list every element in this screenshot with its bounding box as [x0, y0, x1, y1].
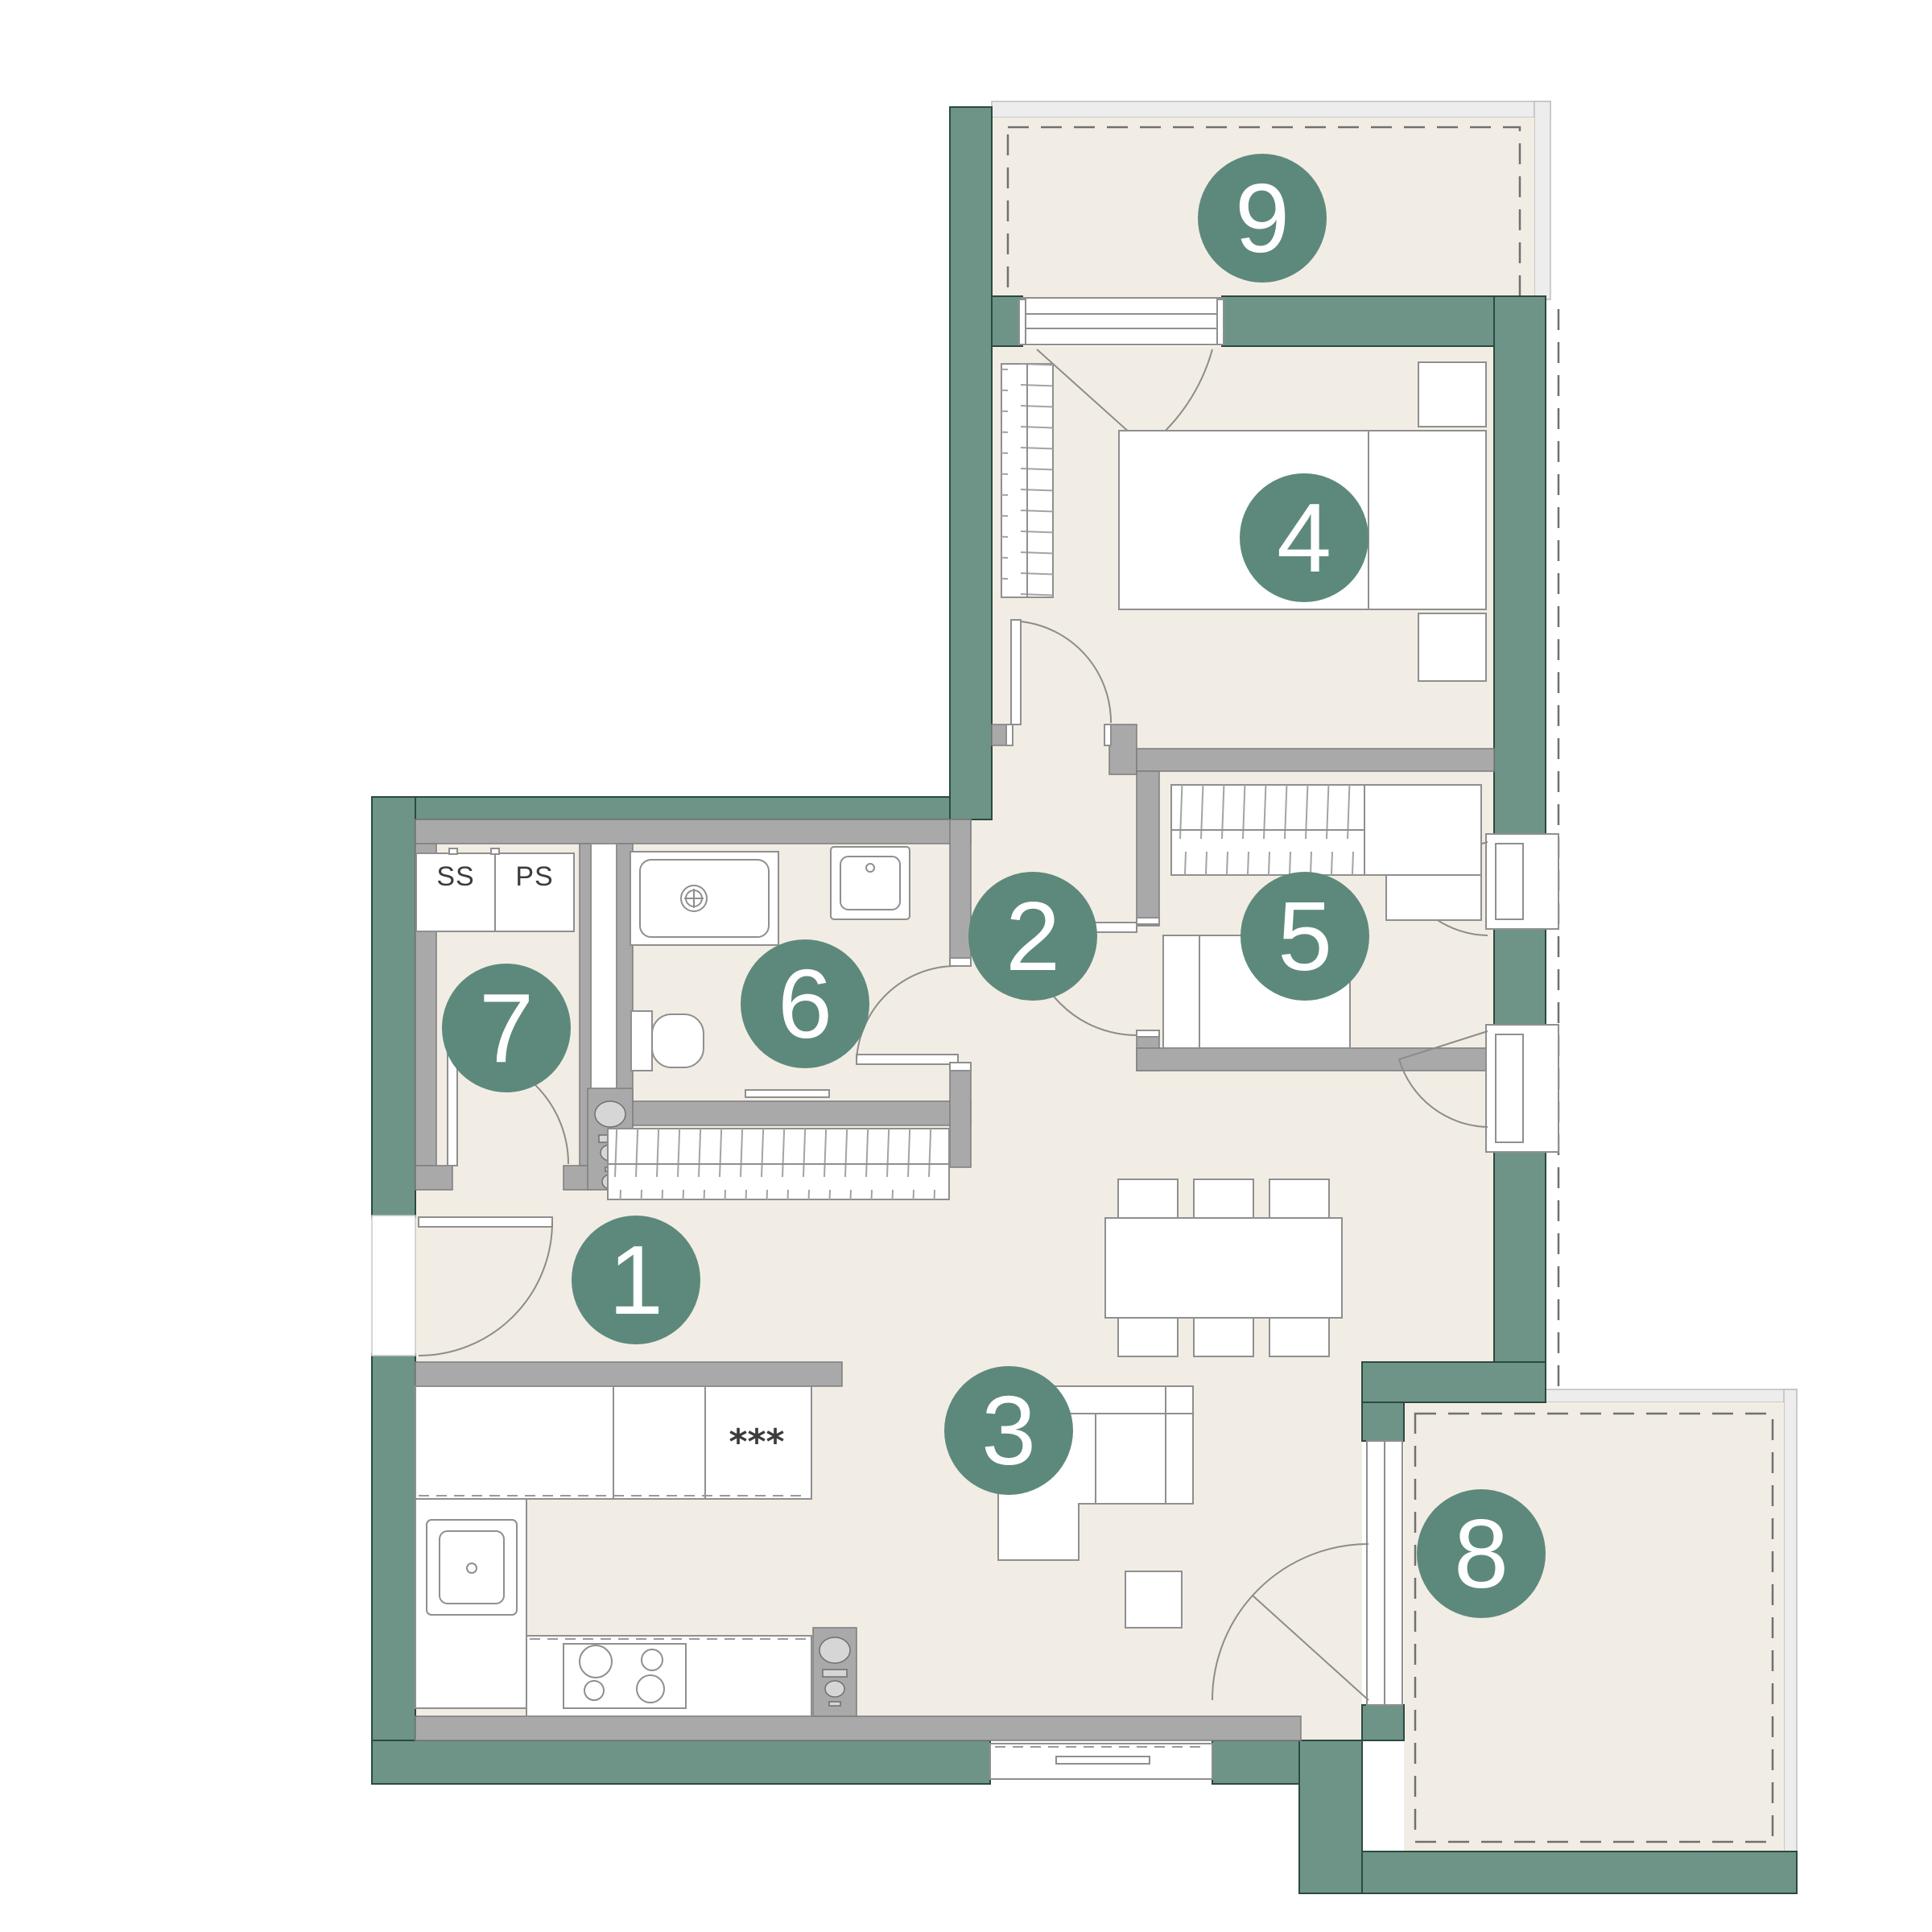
chair	[1118, 1318, 1178, 1356]
svg-text:2: 2	[1005, 881, 1060, 991]
partition-room5-bottom	[1137, 1048, 1494, 1071]
chair	[1194, 1318, 1253, 1356]
nightstand-room4-top	[1418, 362, 1486, 427]
room-marker-5[interactable]: 5	[1241, 872, 1369, 1001]
room-marker-1[interactable]: 1	[572, 1216, 700, 1344]
room-marker-7[interactable]: 7	[442, 964, 571, 1092]
partition-room5-left-upper	[1137, 771, 1159, 926]
wall-left-lower	[372, 1354, 415, 1740]
wall-balcony8-bottom	[1362, 1851, 1797, 1893]
svg-text:9: 9	[1235, 163, 1290, 273]
balcony-bottom-floor	[1404, 1402, 1784, 1853]
partition-room7-bottom-right	[563, 1166, 591, 1190]
room-marker-3[interactable]: 3	[944, 1366, 1073, 1495]
partition-corridor-lower	[950, 1067, 971, 1167]
balcony8-glass-door	[1367, 1441, 1402, 1705]
shaft-column	[591, 844, 617, 1088]
room-marker-8[interactable]: 8	[1417, 1489, 1546, 1618]
wall-upper-left	[950, 107, 992, 819]
svg-text:4: 4	[1277, 483, 1331, 592]
bathtub	[630, 852, 778, 945]
partition-top-lining	[415, 819, 971, 844]
washbasin	[831, 847, 910, 919]
hall-furniture	[608, 1129, 949, 1199]
room-marker-9[interactable]: 9	[1198, 154, 1327, 283]
room-marker-6[interactable]: 6	[741, 939, 869, 1068]
svg-text:5: 5	[1278, 881, 1332, 991]
balcony-bottom-railing-right	[1784, 1389, 1797, 1864]
partition-room5-top	[1137, 749, 1494, 771]
wall-balcony9-left-stub	[992, 296, 1022, 346]
dining-table	[1105, 1218, 1342, 1318]
floor-plan-page: *** SS PS	[0, 0, 1932, 1932]
floor-plan: *** SS PS	[0, 0, 1932, 1932]
kitchen-sink	[427, 1520, 517, 1615]
window-living	[1486, 1025, 1558, 1152]
wall-right-2	[1494, 926, 1546, 1028]
window-bottom	[990, 1744, 1212, 1779]
partition-room7-bottom-left	[415, 1166, 452, 1190]
cabinet-ps-label: PS	[515, 861, 553, 892]
fridge-stars-label: ***	[729, 1422, 784, 1463]
partition-kitchen-top	[415, 1362, 842, 1386]
wall-right-1	[1494, 296, 1546, 837]
wall-balcony8-door-stub-bottom	[1362, 1705, 1404, 1740]
side-table	[1125, 1571, 1182, 1628]
toilet	[631, 1011, 704, 1071]
desk-room5	[1386, 875, 1481, 920]
chair	[1269, 1318, 1329, 1356]
nightstand-room4-bottom	[1418, 613, 1486, 681]
wall-balcony8-top	[1362, 1362, 1546, 1402]
entrance-sill	[372, 1216, 415, 1356]
kitchen-counter-bottom	[526, 1636, 811, 1716]
balcony-top-railing-right	[1534, 101, 1550, 299]
balcony9-door-window	[1019, 298, 1224, 345]
window-room5	[1486, 834, 1558, 929]
svg-text:7: 7	[479, 973, 534, 1083]
svg-text:1: 1	[609, 1225, 663, 1335]
balcony-bottom-railing-top	[1546, 1389, 1797, 1402]
wall-lower-top	[372, 797, 950, 819]
svg-text:6: 6	[778, 949, 832, 1059]
room-marker-4[interactable]: 4	[1240, 473, 1368, 602]
wall-left-upper	[372, 797, 415, 1217]
wall-bottom-mid	[1212, 1740, 1299, 1784]
svg-text:3: 3	[981, 1376, 1036, 1485]
chair	[1269, 1179, 1329, 1218]
wall-balcony8-door-stub-top	[1362, 1402, 1404, 1441]
room7-furniture: SS PS	[416, 848, 574, 931]
partition-room4-room5-joint	[1109, 724, 1137, 774]
partition-bath-bottom	[633, 1101, 971, 1125]
room-marker-2[interactable]: 2	[968, 872, 1097, 1001]
wall-bottom-left	[372, 1740, 990, 1784]
balcony-top-railing	[992, 101, 1550, 118]
partition-corridor-upper	[950, 819, 971, 966]
cabinet-ss-label: SS	[436, 861, 474, 892]
chair	[1118, 1179, 1178, 1218]
partition-bottom-lining	[415, 1716, 1301, 1740]
wall-bottom-step	[1299, 1740, 1362, 1893]
balcony-bottom	[1404, 1389, 1797, 1864]
towel-rail	[745, 1090, 829, 1097]
svg-text:8: 8	[1454, 1499, 1509, 1608]
chair	[1194, 1179, 1253, 1218]
